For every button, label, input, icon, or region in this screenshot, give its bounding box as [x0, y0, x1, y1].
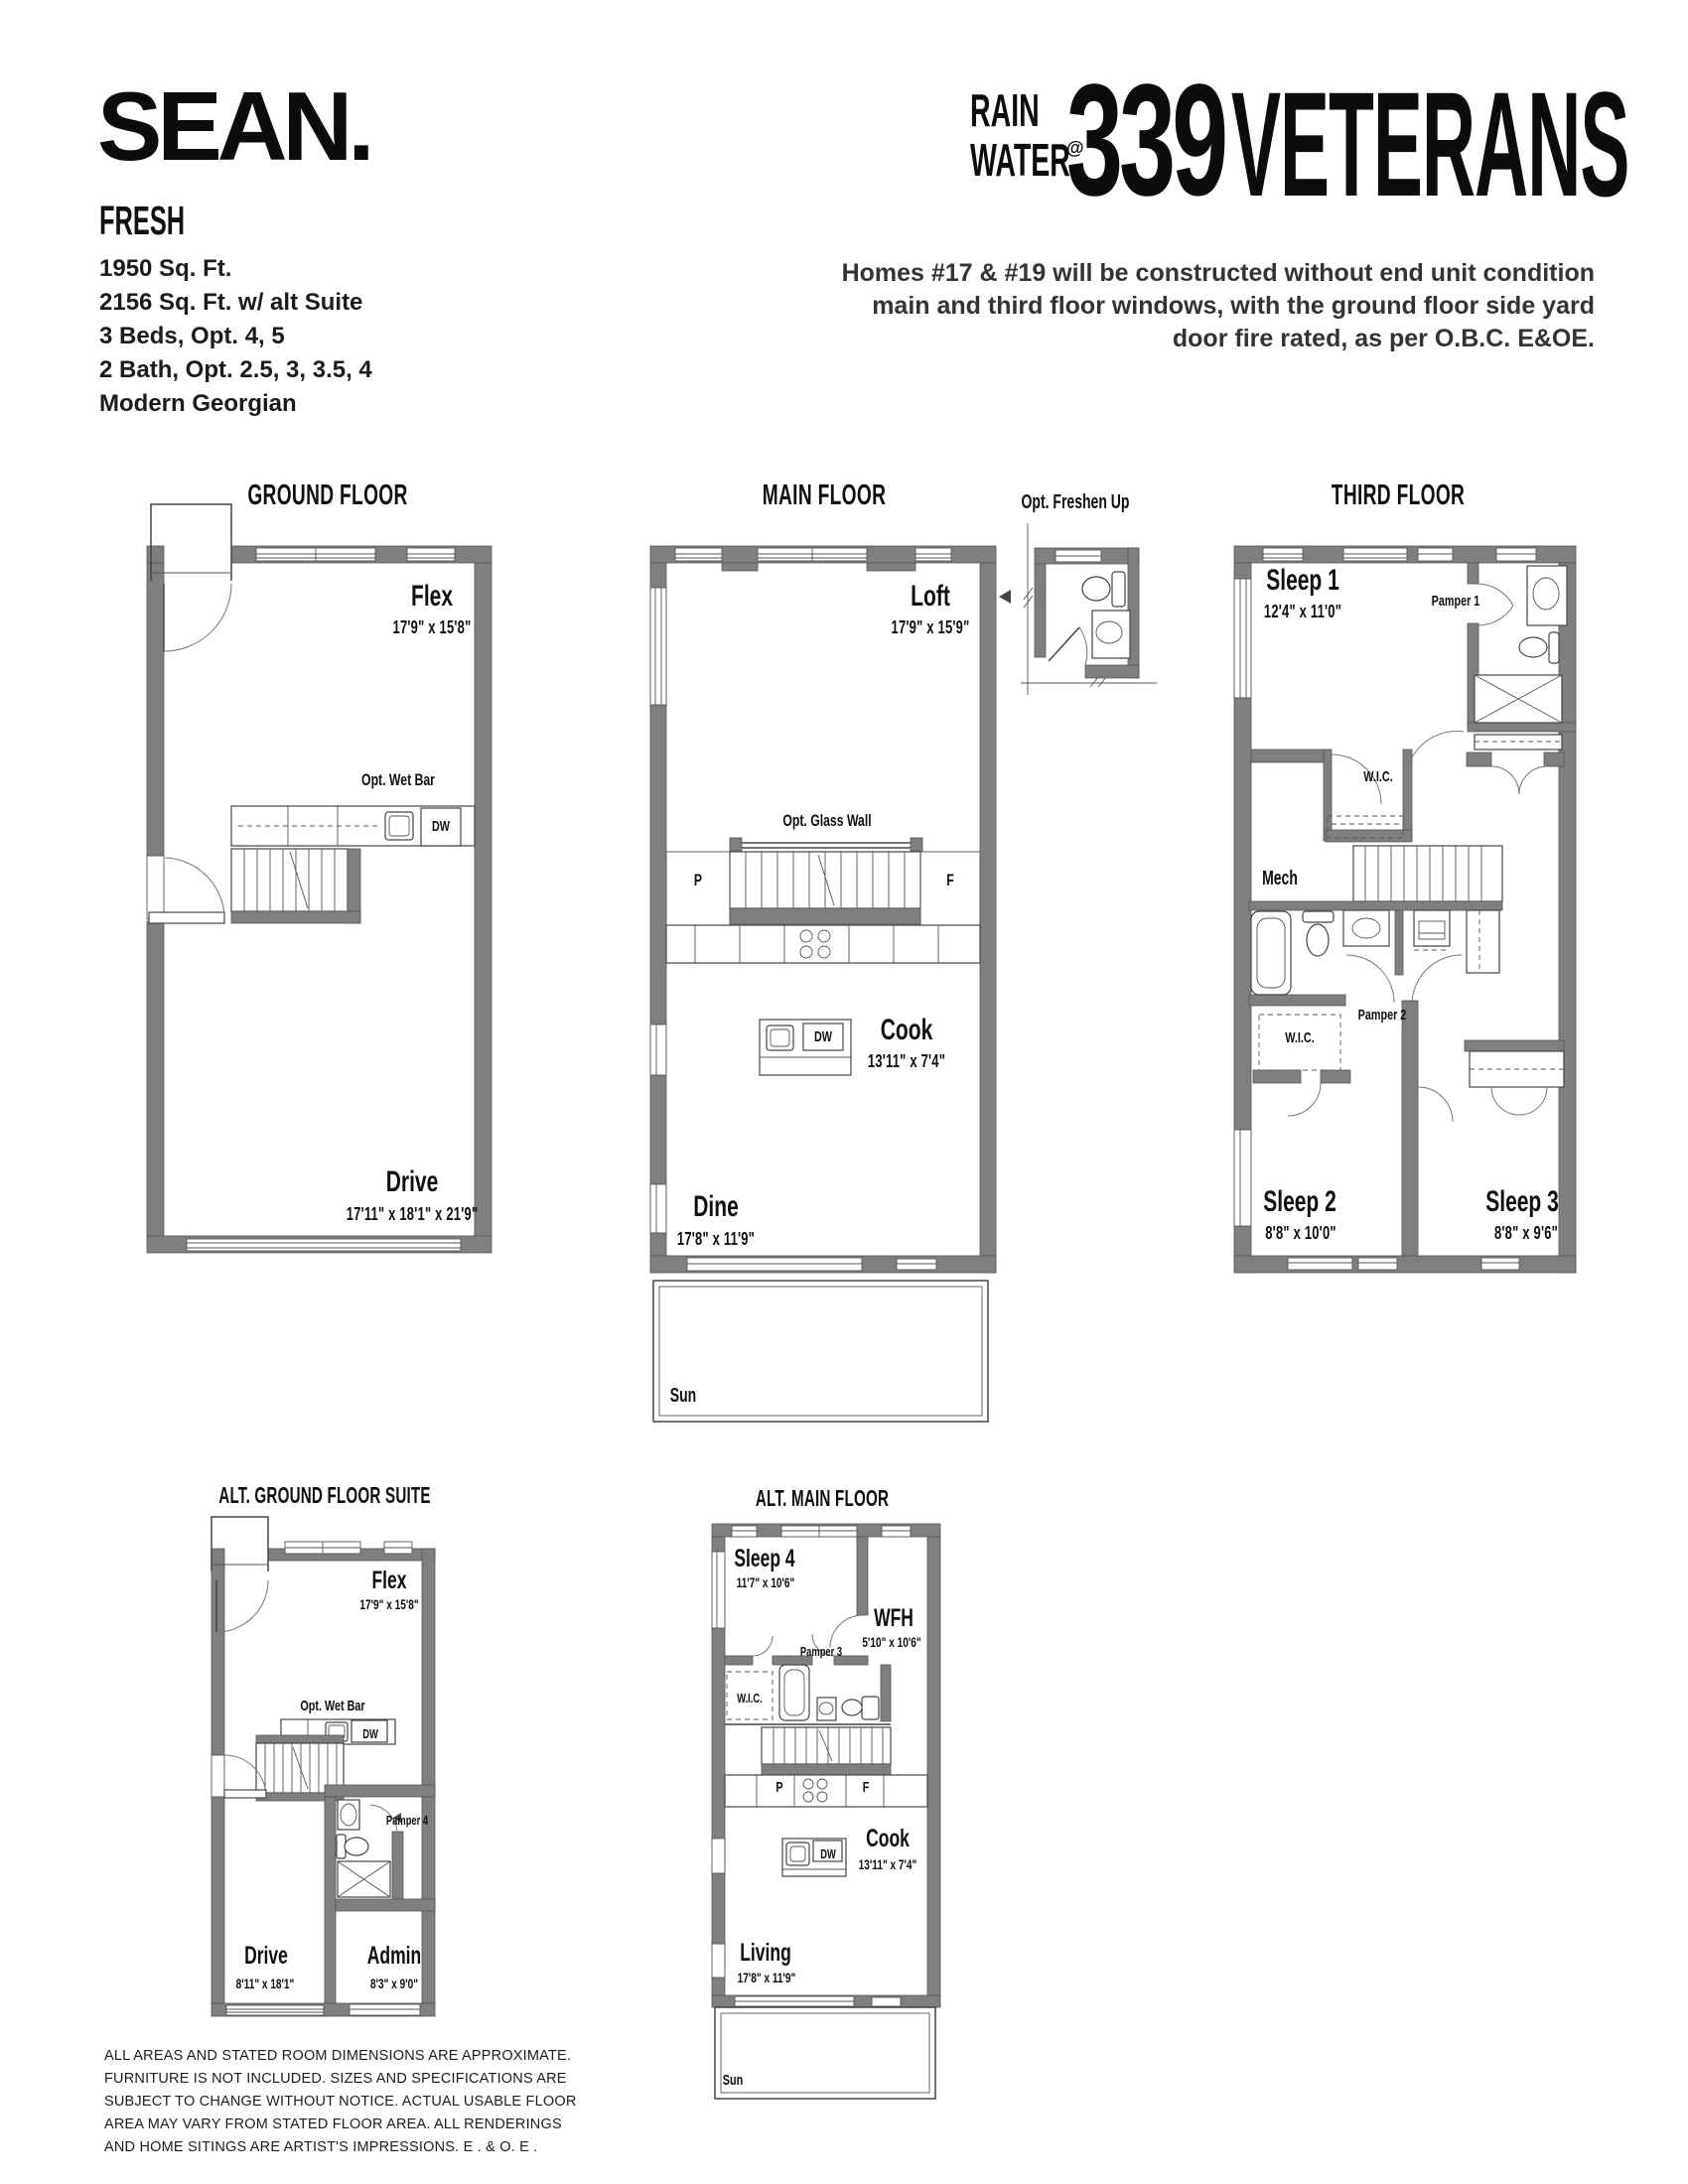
kitchen-counter [725, 1775, 927, 1807]
room-dim-cook: 13'11" x 7'4" [853, 1052, 961, 1071]
floor-plan-sheet: SEAN. FRESH 1950 Sq. Ft. 2156 Sq. Ft. w/… [0, 0, 1688, 2184]
room-label-living: Living [729, 1941, 802, 1966]
label-dishwasher: DW [429, 819, 454, 835]
patio-door [687, 1258, 936, 1271]
spec-sqft-alt: 2156 Sq. Ft. w/ alt Suite [99, 286, 372, 320]
room-label-sleep2: Sleep 2 [1247, 1187, 1351, 1217]
room-dim-living: 17'8" x 11'9" [726, 1971, 806, 1986]
bar-sink-icon [385, 812, 413, 840]
third-floor-panel: THIRD FLOOR Sleep 1 12'4" x 11'0" Pamper… [1211, 477, 1609, 1300]
room-dim-flex: 17'9" x 15'8" [377, 618, 487, 637]
label-sun: Sun [664, 1386, 702, 1406]
room-dim-drive: 8'11" x 18'1" [224, 1977, 305, 1992]
development-logo: RAIN WATER @ 339 VETERANS [968, 87, 1623, 216]
label-pamper2: Pamper 2 [1348, 1008, 1416, 1024]
room-dim-dine: 17'8" x 11'9" [662, 1230, 771, 1249]
plan-title: GROUND FLOOR [207, 481, 449, 510]
sink-icon [1092, 611, 1130, 658]
alt-main-floor-panel: ALT. MAIN FLOOR Sleep 4 11'7" x 10'6" WF… [675, 1479, 973, 2124]
label-glass-wall: Opt. Glass Wall [766, 812, 889, 830]
alt-main-floor-drawing [675, 1479, 973, 2124]
freshen-up-panel: Opt. Freshen Up [1013, 477, 1192, 715]
room-label-cook: Cook [857, 1827, 919, 1851]
room-label-flex: Flex [364, 1569, 414, 1593]
sun-deck [653, 1281, 988, 1422]
room-label-cook: Cook [870, 1016, 944, 1045]
kitchen-island [760, 1020, 851, 1075]
label-dishwasher: DW [817, 1846, 839, 1862]
toilet-icon [1303, 911, 1334, 956]
label-wet-bar: Opt. Wet Bar [348, 771, 450, 789]
garage-door [226, 2005, 324, 2015]
spec-beds: 3 Beds, Opt. 4, 5 [99, 320, 372, 353]
room-dim-drive: 17'11" x 18'1" x 21'9" [321, 1205, 503, 1224]
toilet-icon [1519, 632, 1559, 663]
plan-collection-name: FRESH [99, 201, 237, 241]
room-label-drive: Drive [374, 1167, 449, 1197]
bathtub-icon [1251, 911, 1291, 995]
room-label-admin: Admin [355, 1944, 433, 1969]
room-label-flex: Flex [402, 582, 462, 612]
spec-baths: 2 Bath, Opt. 2.5, 3, 3.5, 4 [99, 353, 372, 387]
stairs [231, 849, 360, 923]
label-wet-bar: Opt. Wet Bar [288, 1699, 378, 1714]
sink-icon [817, 1698, 836, 1720]
toilet-icon [842, 1697, 879, 1719]
plan-title: ALT. MAIN FLOOR [721, 1487, 922, 1510]
door-swing [1049, 627, 1087, 665]
room-dim-flex: 17'9" x 15'8" [349, 1597, 430, 1613]
room-dim-sleep3: 8'8" x 9'6" [1482, 1224, 1571, 1243]
ground-floor-drawing [99, 477, 526, 1300]
label-dishwasher: DW [811, 1029, 836, 1045]
stairs [762, 1727, 891, 1775]
sun-deck [715, 2007, 935, 2099]
sleep3-closet [1418, 1040, 1564, 1122]
room-label-dine: Dine [683, 1192, 748, 1222]
plan-title: ALT. GROUND FLOOR SUITE [164, 1484, 485, 1507]
ground-floor-panel: GROUND FLOOR Flex 17'9" x 15'8" Opt. Wet… [99, 477, 526, 1300]
logo-rain: RAIN [970, 87, 1040, 133]
label-wic2: W.I.C. [1280, 1030, 1321, 1046]
room-dim-sleep2: 8'8" x 10'0" [1251, 1224, 1349, 1243]
disclaimer-text: ALL AREAS AND STATED ROOM DIMENSIONS ARE… [104, 2045, 591, 2159]
plan-title: Opt. Freshen Up [998, 492, 1153, 512]
label-pamper4: Pamper 4 [378, 1813, 437, 1829]
label-fridge: F [945, 872, 955, 889]
label-pantry: P [692, 872, 703, 889]
label-mech: Mech [1254, 869, 1305, 888]
label-sun: Sun [719, 2073, 747, 2089]
room-label-sleep4: Sleep 4 [721, 1547, 808, 1571]
window [1055, 550, 1101, 562]
windows [256, 548, 455, 561]
spec-sqft: 1950 Sq. Ft. [99, 252, 372, 286]
stairs [1328, 816, 1502, 901]
label-wic: W.I.C. [732, 1691, 767, 1706]
stairs [730, 852, 920, 924]
label-fridge: F [861, 1780, 870, 1796]
logo-water: WATER [970, 137, 1070, 183]
glass-wall [730, 838, 922, 851]
room-label-sleep1: Sleep 1 [1250, 566, 1354, 596]
sink-icon [1527, 566, 1567, 625]
freshen-up-marker [999, 590, 1011, 604]
plan-title: MAIN FLOOR [731, 481, 918, 510]
label-pantry: P [774, 1780, 784, 1796]
windows [285, 1542, 412, 1554]
room-dim-admin: 8'3" x 9'0" [361, 1977, 428, 1992]
alt-ground-floor-panel: ALT. GROUND FLOOR SUITE Flex 17'9" x 15'… [149, 1479, 487, 2035]
spec-style: Modern Georgian [99, 387, 372, 421]
sink-icon [338, 1800, 359, 1830]
logo-number: 339 [1066, 61, 1224, 219]
shower-icon [338, 1861, 390, 1897]
room-dim-loft: 17'9" x 15'9" [876, 618, 985, 637]
kitchen-counter [666, 925, 980, 963]
wfh-wall [830, 1537, 868, 1648]
hall-closet [1467, 910, 1499, 973]
logo-street: VETERANS [1231, 69, 1628, 218]
sink-icon [1343, 910, 1389, 946]
shower-icon [1475, 675, 1562, 723]
side-door-swing [147, 856, 224, 923]
label-pamper3: Pamper 3 [792, 1644, 851, 1660]
alt-ground-floor-drawing [149, 1479, 487, 2035]
main-floor-panel: MAIN FLOOR Loft 17'9" x 15'9" Opt. Glass… [616, 477, 1043, 1430]
room-dim-sleep1: 12'4" x 11'0" [1249, 603, 1357, 621]
garage-door [187, 1239, 461, 1251]
washer-dryer-icon [1414, 910, 1450, 950]
central-wall [1402, 1001, 1418, 1256]
wic1-walls [1251, 732, 1464, 842]
builder-logo: SEAN. [97, 77, 370, 175]
room-label-loft: Loft [903, 582, 959, 612]
toilet-icon [1082, 572, 1125, 607]
admin-window [350, 2004, 420, 2015]
label-wic1: W.I.C. [1358, 769, 1399, 785]
room-dim-sleep4: 11'7" x 10'6" [725, 1575, 805, 1591]
label-pamper1: Pamper 1 [1422, 594, 1489, 610]
plan-title: THIRD FLOOR [1297, 481, 1499, 510]
entry-door-swing [164, 584, 231, 651]
plan-specs: 1950 Sq. Ft. 2156 Sq. Ft. w/ alt Suite 3… [99, 252, 372, 421]
bathtub-icon [779, 1665, 809, 1720]
room-label-sleep3: Sleep 3 [1470, 1187, 1574, 1217]
room-dim-cook: 13'11" x 7'4" [847, 1857, 927, 1873]
label-dishwasher: DW [359, 1726, 381, 1742]
room-label-drive: Drive [235, 1944, 298, 1969]
toilet-icon [337, 1835, 368, 1858]
patio-door [735, 1996, 901, 2006]
room-dim-wfh: 5'10" x 10'6" [851, 1635, 932, 1651]
room-label-wfh: WFH [866, 1606, 922, 1631]
construction-note: Homes #17 & #19 will be constructed with… [840, 257, 1595, 355]
